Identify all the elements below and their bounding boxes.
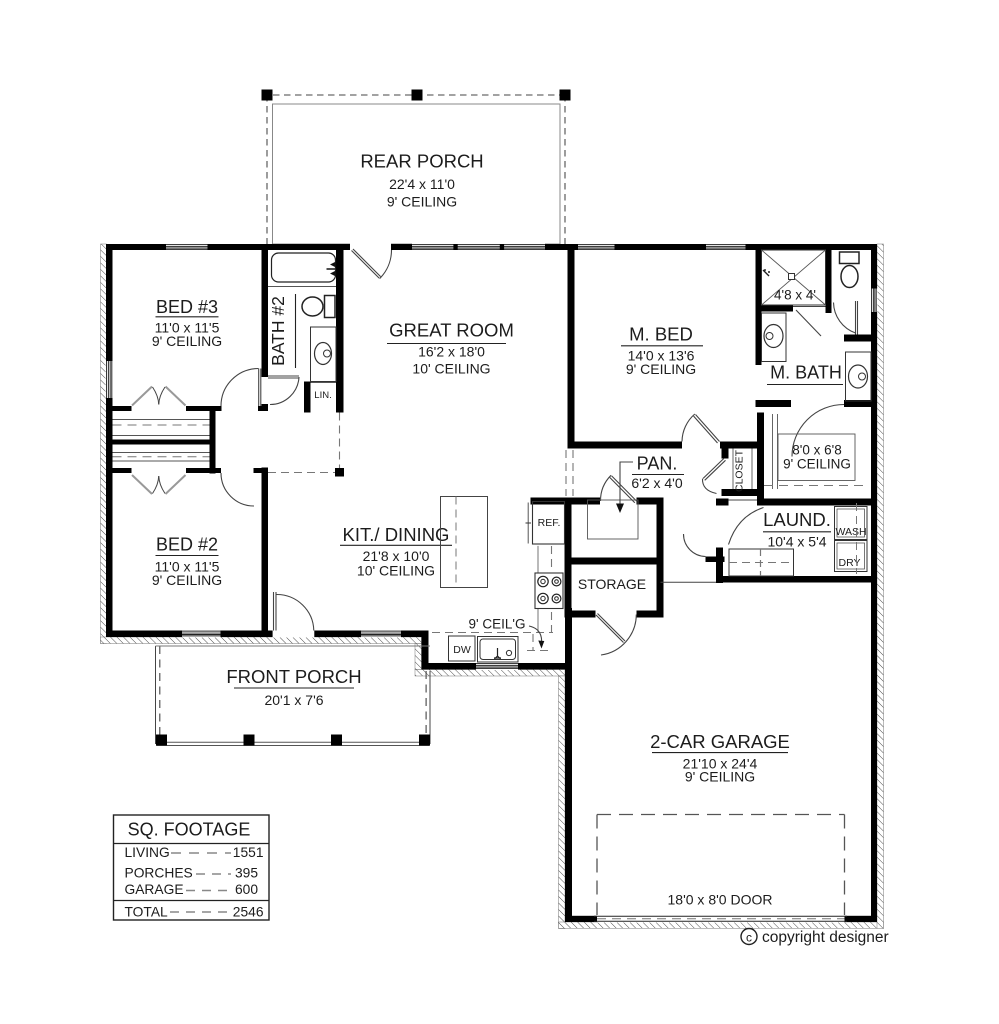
svg-text:20'1 x 7'6: 20'1 x 7'6 xyxy=(264,692,323,708)
svg-text:M. BATH: M. BATH xyxy=(770,363,842,383)
svg-text:GREAT ROOM: GREAT ROOM xyxy=(389,320,514,341)
svg-text:9' CEILING: 9' CEILING xyxy=(387,194,457,210)
svg-text:4'8 x 4': 4'8 x 4' xyxy=(774,288,816,303)
svg-text:2-CAR GARAGE: 2-CAR GARAGE xyxy=(650,731,790,752)
svg-text:DRY: DRY xyxy=(839,557,861,569)
svg-text:395: 395 xyxy=(235,866,258,881)
svg-text:copyright designer: copyright designer xyxy=(762,929,889,946)
svg-text:9' CEILING: 9' CEILING xyxy=(783,457,851,472)
svg-text:8'0 x 6'8: 8'0 x 6'8 xyxy=(792,443,841,458)
svg-text:PAN.: PAN. xyxy=(637,454,678,474)
svg-text:DW: DW xyxy=(453,644,471,656)
svg-text:SQ. FOOTAGE: SQ. FOOTAGE xyxy=(128,820,251,840)
svg-text:9' CEILING: 9' CEILING xyxy=(685,769,755,785)
svg-text:6'2 x 4'0: 6'2 x 4'0 xyxy=(631,475,682,491)
svg-text:LIVING: LIVING xyxy=(125,845,170,860)
svg-text:9' CEIL'G: 9' CEIL'G xyxy=(469,617,526,632)
svg-text:REF.: REF. xyxy=(538,517,561,529)
svg-text:9' CEILING: 9' CEILING xyxy=(626,361,696,377)
svg-text:10' CEILING: 10' CEILING xyxy=(357,563,435,579)
svg-text:REAR PORCH: REAR PORCH xyxy=(360,151,483,172)
svg-text:STORAGE: STORAGE xyxy=(578,576,646,592)
svg-text:LAUND.: LAUND. xyxy=(763,509,831,530)
svg-text:LIN.: LIN. xyxy=(314,390,331,401)
svg-text:CLOSET: CLOSET xyxy=(734,449,746,492)
svg-text:9' CEILING: 9' CEILING xyxy=(152,333,222,349)
svg-text:BATH #2: BATH #2 xyxy=(268,296,288,366)
svg-text:BED #2: BED #2 xyxy=(156,535,218,555)
svg-text:GARAGE: GARAGE xyxy=(125,882,184,897)
svg-text:PORCHES: PORCHES xyxy=(125,866,193,881)
svg-text:2546: 2546 xyxy=(233,905,264,920)
svg-text:18'0 x 8'0 DOOR: 18'0 x 8'0 DOOR xyxy=(668,892,773,908)
svg-text:TOTAL: TOTAL xyxy=(125,905,169,920)
svg-text:M. BED: M. BED xyxy=(629,324,693,345)
svg-text:BED #3: BED #3 xyxy=(156,297,218,317)
svg-text:9' CEILING: 9' CEILING xyxy=(152,572,222,588)
svg-text:1551: 1551 xyxy=(233,845,264,860)
svg-text:10'4 x 5'4: 10'4 x 5'4 xyxy=(767,534,826,550)
svg-text:600: 600 xyxy=(235,882,258,897)
svg-text:c: c xyxy=(746,931,752,945)
svg-text:KIT./ DINING: KIT./ DINING xyxy=(343,524,450,545)
svg-text:FRONT PORCH: FRONT PORCH xyxy=(226,666,361,687)
svg-text:WASH: WASH xyxy=(835,526,866,538)
svg-text:16'2 x 18'0: 16'2 x 18'0 xyxy=(418,344,485,360)
svg-text:10' CEILING: 10' CEILING xyxy=(412,361,490,377)
svg-text:22'4 x 11'0: 22'4 x 11'0 xyxy=(389,176,455,192)
